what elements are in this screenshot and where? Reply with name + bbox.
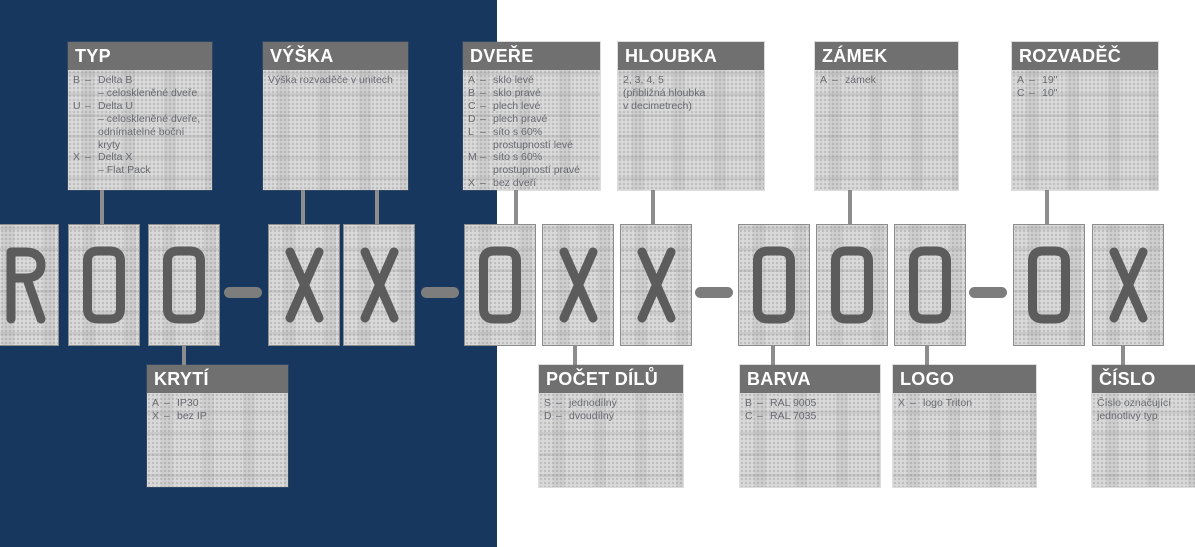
code-block-6-0 — [464, 224, 536, 346]
callout-typ: TYPB–Delta B– celoskleněné dveřeU–Delta … — [68, 42, 212, 190]
option-text: Delta X — [98, 151, 212, 164]
callout-title-kryti: KRYTÍ — [147, 365, 288, 393]
connector-line-cislo — [1121, 343, 1125, 366]
connector-line-vyska — [301, 190, 305, 225]
callout-line: Číslo označující — [1097, 397, 1195, 410]
code-block-4-X — [268, 224, 340, 346]
option-text: dvoudílný — [569, 410, 683, 423]
callout-line: B–Delta B — [73, 74, 212, 87]
code-block-5-X — [343, 224, 415, 346]
option-code: A — [468, 74, 480, 87]
option-code: A — [820, 74, 832, 87]
callout-line: S–jednodílný — [544, 397, 683, 410]
option-text: prostupností pravé — [493, 164, 600, 177]
callout-logo: LOGOX–logo Triton — [893, 365, 1036, 487]
glyph-0-icon — [817, 225, 887, 345]
callout-line: – Flat Pack — [73, 164, 212, 177]
option-text: sklo levé — [493, 74, 600, 87]
option-text: zámek — [845, 74, 958, 87]
connector-line-zamek — [848, 190, 852, 225]
callout-line: U–Delta U — [73, 100, 212, 113]
callout-line: v decimetrech) — [623, 100, 764, 113]
option-separator: – — [480, 100, 493, 113]
callout-title-barva: BARVA — [740, 365, 880, 393]
callout-line: C–RAL 7035 — [745, 410, 880, 423]
option-code: B — [468, 87, 480, 100]
option-separator: – — [164, 397, 177, 410]
callout-line: X–bez dveří — [468, 177, 600, 190]
callout-body-hloubka: 2, 3, 4, 5(přibližná hloubkav decimetrec… — [618, 70, 764, 190]
option-text: síto s 60% — [493, 151, 600, 164]
option-separator — [85, 139, 98, 152]
option-separator: – — [85, 74, 98, 87]
glyph-X-icon — [344, 225, 414, 345]
option-text: logo Triton — [923, 397, 1036, 410]
callout-body-rozvadec: A–19"C–10" — [1012, 70, 1158, 190]
option-code: C — [1017, 87, 1029, 100]
callout-line: kryty — [73, 139, 212, 152]
option-code: C — [468, 100, 480, 113]
callout-line: jednotlivý typ — [1097, 410, 1195, 423]
callout-body-vyska: Výška rozvaděče v unitech — [263, 70, 408, 190]
callout-title-cislo: ČÍSLO — [1092, 365, 1195, 393]
callout-line: C–plech levé — [468, 100, 600, 113]
code-separator-dash-4 — [969, 287, 1007, 298]
option-separator: – — [1029, 74, 1042, 87]
option-separator: – — [480, 151, 493, 164]
callout-title-zamek: ZÁMEK — [815, 42, 958, 70]
code-block-2-0 — [68, 224, 140, 346]
connector-line-kryti — [182, 343, 186, 366]
option-separator: – — [480, 87, 493, 100]
option-code: X — [73, 151, 85, 164]
callout-title-logo: LOGO — [893, 365, 1036, 393]
callout-line: A–IP30 — [152, 397, 288, 410]
glyph-0-icon — [69, 225, 139, 345]
option-text: bez IP — [177, 410, 288, 423]
option-text: prostupností levé — [493, 139, 600, 152]
glyph-0-icon — [1014, 225, 1084, 345]
option-separator: – — [556, 410, 569, 423]
option-separator: – — [1029, 87, 1042, 100]
callout-body-logo: X–logo Triton — [893, 393, 1036, 487]
option-code: S — [544, 397, 556, 410]
option-code: L — [468, 126, 480, 139]
glyph-0-icon — [465, 225, 535, 345]
glyph-0-icon — [895, 225, 965, 345]
connector-line-dvere — [514, 190, 518, 225]
callout-line: D–plech pravé — [468, 113, 600, 126]
glyph-0-icon — [149, 225, 219, 345]
callout-line: odnímatelné boční — [73, 126, 212, 139]
option-code — [73, 87, 85, 100]
callout-line: A–zámek — [820, 74, 958, 87]
option-separator — [85, 164, 98, 177]
code-separator-dash-1 — [224, 287, 262, 298]
connector-line-vyska — [375, 190, 379, 225]
option-text: sklo pravé — [493, 87, 600, 100]
callout-body-typ: B–Delta B– celoskleněné dveřeU–Delta U– … — [68, 70, 212, 190]
callout-line: – celoskleněné dveře — [73, 87, 212, 100]
callout-body-zamek: A–zámek — [815, 70, 958, 190]
callout-vyska: VÝŠKAVýška rozvaděče v unitech — [263, 42, 408, 190]
callout-title-hloubka: HLOUBKA — [618, 42, 764, 70]
option-separator: – — [85, 151, 98, 164]
option-separator — [85, 113, 98, 126]
code-block-10-0 — [816, 224, 888, 346]
code-separator-dash-2 — [421, 287, 459, 298]
option-separator — [85, 126, 98, 139]
code-block-12-0 — [1013, 224, 1085, 346]
callout-body-pocet-dilu: S–jednodílnýD–dvoudílný — [539, 393, 683, 487]
option-text: 10" — [1042, 87, 1158, 100]
option-text: – celoskleněné dveře, — [98, 113, 212, 126]
option-separator: – — [480, 177, 493, 190]
callout-dvere: DVEŘEA–sklo levéB–sklo pravéC–plech levé… — [463, 42, 600, 190]
callout-body-kryti: A–IP30X–bez IP — [147, 393, 288, 487]
glyph-X-icon — [543, 225, 613, 345]
option-code: A — [1017, 74, 1029, 87]
callout-body-barva: B–RAL 9005C–RAL 7035 — [740, 393, 880, 487]
option-code: X — [468, 177, 480, 190]
option-code: U — [73, 100, 85, 113]
glyph-R-icon — [0, 225, 58, 345]
code-block-1-R — [0, 224, 59, 346]
connector-line-barva — [771, 343, 775, 366]
callout-line: B–RAL 9005 — [745, 397, 880, 410]
option-text: bez dveří — [493, 177, 600, 190]
callout-title-dvere: DVEŘE — [463, 42, 600, 70]
callout-line: 2, 3, 4, 5 — [623, 74, 764, 87]
code-separator-dash-3 — [695, 287, 733, 298]
option-separator: – — [832, 74, 845, 87]
option-code: D — [468, 113, 480, 126]
connector-line-logo — [925, 343, 929, 366]
option-text: kryty — [98, 139, 212, 152]
code-block-7-X — [542, 224, 614, 346]
code-block-8-X — [620, 224, 692, 346]
option-code — [468, 164, 480, 177]
option-text: – Flat Pack — [98, 164, 212, 177]
option-code — [73, 164, 85, 177]
option-text: Delta U — [98, 100, 212, 113]
option-separator: – — [480, 126, 493, 139]
option-code — [73, 113, 85, 126]
option-separator: – — [757, 410, 770, 423]
callout-line: X–bez IP — [152, 410, 288, 423]
callout-pocet-dilu: POČET DÍLŮS–jednodílnýD–dvoudílný — [539, 365, 683, 487]
callout-line: (přibližná hloubka — [623, 87, 764, 100]
callout-title-typ: TYP — [68, 42, 212, 70]
callout-line: prostupností levé — [468, 139, 600, 152]
callout-rozvadec: ROZVADĚČA–19"C–10" — [1012, 42, 1158, 190]
option-code: D — [544, 410, 556, 423]
option-code — [468, 139, 480, 152]
code-block-3-0 — [148, 224, 220, 346]
callout-line: X–logo Triton — [898, 397, 1036, 410]
callout-line: A–19" — [1017, 74, 1158, 87]
option-text: – celoskleněné dveře — [98, 87, 212, 100]
option-separator — [480, 164, 493, 177]
callout-line: A–sklo levé — [468, 74, 600, 87]
option-text: RAL 9005 — [770, 397, 880, 410]
glyph-0-icon — [739, 225, 809, 345]
callout-line: B–sklo pravé — [468, 87, 600, 100]
connector-line-hloubka — [651, 190, 655, 225]
option-text: RAL 7035 — [770, 410, 880, 423]
glyph-X-icon — [269, 225, 339, 345]
option-text: plech levé — [493, 100, 600, 113]
callout-barva: BARVAB–RAL 9005C–RAL 7035 — [740, 365, 880, 487]
option-code: X — [898, 397, 910, 410]
option-separator: – — [164, 410, 177, 423]
option-code: M — [468, 151, 480, 164]
callout-kryti: KRYTÍA–IP30X–bez IP — [147, 365, 288, 487]
callout-line: L–síto s 60% — [468, 126, 600, 139]
callout-zamek: ZÁMEKA–zámek — [815, 42, 958, 190]
option-code: C — [745, 410, 757, 423]
callout-cislo: ČÍSLOČíslo označujícíjednotlivý typ — [1092, 365, 1195, 487]
code-block-13-X — [1092, 224, 1164, 346]
option-code: X — [152, 410, 164, 423]
callout-line: C–10" — [1017, 87, 1158, 100]
option-separator: – — [910, 397, 923, 410]
code-block-9-0 — [738, 224, 810, 346]
callout-line: Výška rozvaděče v unitech — [268, 74, 408, 87]
connector-line-typ — [100, 190, 104, 225]
callout-line: D–dvoudílný — [544, 410, 683, 423]
option-text: jednodílný — [569, 397, 683, 410]
option-separator — [85, 87, 98, 100]
option-text: síto s 60% — [493, 126, 600, 139]
option-separator — [480, 139, 493, 152]
option-separator: – — [556, 397, 569, 410]
glyph-X-icon — [1093, 225, 1163, 345]
option-separator: – — [757, 397, 770, 410]
option-code: B — [73, 74, 85, 87]
callout-title-pocet-dilu: POČET DÍLŮ — [539, 365, 683, 393]
callout-line: M–síto s 60% — [468, 151, 600, 164]
option-text: plech pravé — [493, 113, 600, 126]
option-code — [73, 126, 85, 139]
option-separator: – — [480, 74, 493, 87]
callout-body-cislo: Číslo označujícíjednotlivý typ — [1092, 393, 1195, 487]
callout-title-vyska: VÝŠKA — [263, 42, 408, 70]
glyph-X-icon — [621, 225, 691, 345]
option-code: B — [745, 397, 757, 410]
callout-title-rozvadec: ROZVADĚČ — [1012, 42, 1158, 70]
callout-body-dvere: A–sklo levéB–sklo pravéC–plech levéD–ple… — [463, 70, 600, 190]
callout-line: – celoskleněné dveře, — [73, 113, 212, 126]
callout-line: X–Delta X — [73, 151, 212, 164]
option-text: 19" — [1042, 74, 1158, 87]
option-code: A — [152, 397, 164, 410]
callout-hloubka: HLOUBKA2, 3, 4, 5(přibližná hloubkav dec… — [618, 42, 764, 190]
option-text: Delta B — [98, 74, 212, 87]
callout-line: prostupností pravé — [468, 164, 600, 177]
connector-line-pocet-dilu — [573, 343, 577, 366]
option-text: IP30 — [177, 397, 288, 410]
option-text: odnímatelné boční — [98, 126, 212, 139]
connector-line-rozvadec — [1045, 190, 1049, 225]
option-code — [73, 139, 85, 152]
code-block-11-0 — [894, 224, 966, 346]
option-separator: – — [85, 100, 98, 113]
option-separator: – — [480, 113, 493, 126]
product-code-diagram: TYPB–Delta B– celoskleněné dveřeU–Delta … — [0, 0, 1195, 547]
